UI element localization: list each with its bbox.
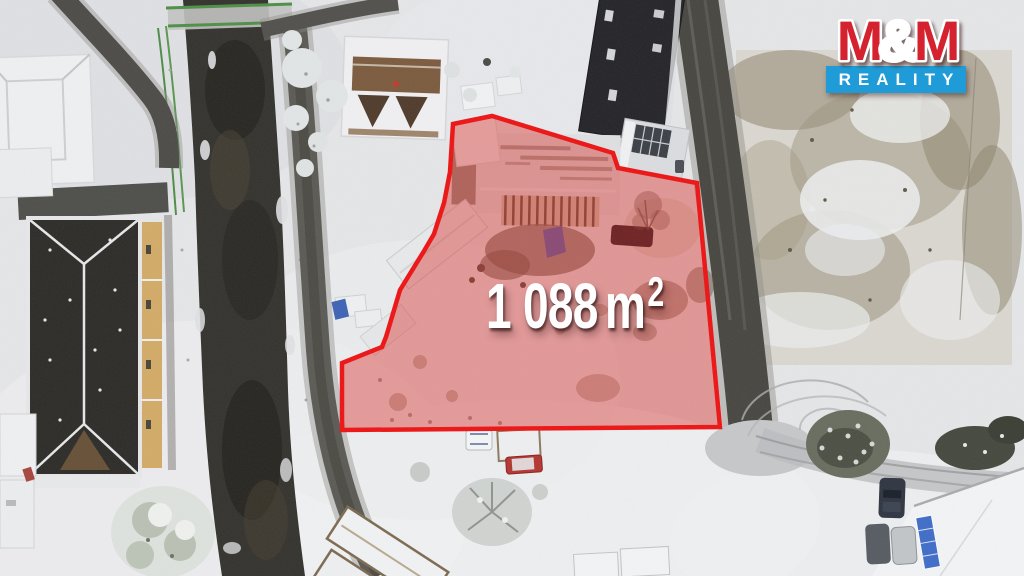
area-value: 1 088: [486, 270, 598, 342]
logo-mm: M&M: [837, 10, 957, 72]
area-label: 1 088m2: [486, 274, 663, 346]
logo-reality-label: REALITY: [839, 70, 961, 90]
brand-logo: M&M REALITY: [826, 10, 966, 93]
logo-ampersand: &: [878, 10, 917, 72]
aerial-photo: 1 088m2 M&M REALITY: [0, 0, 1024, 576]
logo-m2: M: [914, 10, 957, 72]
area-exponent: 2: [647, 268, 663, 315]
logo-mm-text: M&M: [826, 10, 966, 72]
logo-m1: M: [837, 10, 880, 72]
area-unit: m: [605, 270, 645, 342]
logo-reality-bar: REALITY: [826, 66, 966, 93]
